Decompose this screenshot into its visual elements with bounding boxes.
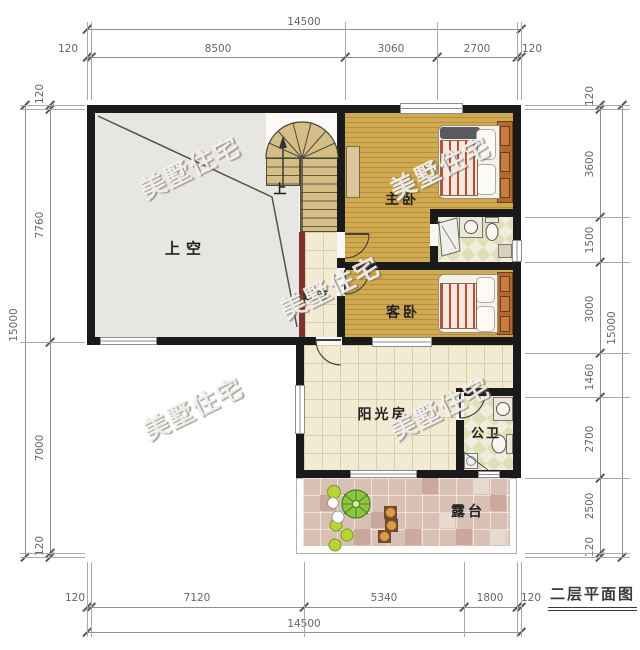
wall-corridor-lower xyxy=(337,296,345,337)
dim-extension xyxy=(521,22,522,100)
stairwell-railing xyxy=(299,232,305,337)
wall-bath-top xyxy=(456,388,521,396)
wall-ensuite-left xyxy=(430,246,438,262)
dim-top-3: 2700 xyxy=(464,43,491,55)
guest-bed-post xyxy=(500,276,510,292)
dim-extension xyxy=(517,562,518,637)
dim-bottom-3: 1800 xyxy=(477,592,504,604)
dim-right-3: 3000 xyxy=(584,296,596,323)
wall-left xyxy=(87,105,95,345)
ensuite-door-opening xyxy=(430,224,438,246)
dim-extension xyxy=(345,22,346,100)
dim-line-right-total xyxy=(622,105,623,557)
dim-line-right-segments xyxy=(600,105,601,557)
dim-extension xyxy=(91,22,92,100)
bath-window xyxy=(478,471,500,478)
dim-extension xyxy=(87,562,88,637)
ensuite-cabinet xyxy=(498,244,512,258)
corridor-floor xyxy=(305,232,337,337)
dim-extension xyxy=(525,397,630,398)
dim-extension xyxy=(517,22,518,100)
dim-extension xyxy=(525,109,630,110)
master-bedroom-label: 主卧 xyxy=(385,189,419,209)
stairs-up-label: 上 xyxy=(273,179,286,198)
master-door-opening xyxy=(337,232,345,258)
dim-line-left-segments xyxy=(50,105,51,557)
dim-extension xyxy=(20,553,85,554)
guest-bed-post xyxy=(500,296,510,312)
wardrobe xyxy=(346,146,360,198)
terrace-tile-accent xyxy=(422,478,438,494)
dim-extension xyxy=(464,562,465,637)
terrace-tile-accent xyxy=(371,512,387,528)
public-bath-toilet-tank xyxy=(506,434,513,454)
guest-bed-pillow xyxy=(476,277,495,303)
guest-bed-post xyxy=(500,316,510,332)
sunroom-label: 阳光房 xyxy=(358,404,409,424)
dim-extension xyxy=(20,105,85,106)
dim-left-1: 7760 xyxy=(34,212,46,239)
wall-ensuite-top xyxy=(430,209,521,217)
corridor-label: 过道 xyxy=(303,287,329,304)
master-bed-post xyxy=(500,126,510,146)
wall-guest-top xyxy=(337,262,521,270)
terrace-threshold xyxy=(350,470,417,478)
master-bed-throw xyxy=(440,127,480,139)
dim-extension xyxy=(525,478,630,479)
dim-extension xyxy=(525,217,630,218)
dim-extension xyxy=(437,22,438,100)
dim-top-1: 8500 xyxy=(205,43,232,55)
guest-bed-pillow xyxy=(476,306,495,332)
sunroom-door-opening xyxy=(316,337,342,345)
public-bath-label: 公卫 xyxy=(471,423,501,442)
ensuite-toilet-tank xyxy=(485,217,499,223)
dim-extension xyxy=(87,22,88,100)
floor-plan-canvas: 上空 主卧 客卧 阳光房 公卫 露台 过道 上 美墅住宅 美墅住宅 美墅住宅 美… xyxy=(0,0,640,650)
wall-ensuite-left-stub xyxy=(430,217,438,224)
dim-left-0: 120 xyxy=(34,84,46,104)
dim-extension xyxy=(91,562,92,637)
dim-right-7: 120 xyxy=(584,537,596,557)
dim-line-left-total xyxy=(25,105,26,557)
dim-right-2: 1500 xyxy=(584,227,596,254)
ensuite-window xyxy=(512,240,522,262)
terrace-tile-accent xyxy=(473,478,489,494)
guest-door-opening xyxy=(337,268,345,296)
dim-bottom-0: 120 xyxy=(65,592,85,604)
dim-extension xyxy=(20,557,85,558)
terrace-tile-accent xyxy=(354,529,370,545)
terrace-tile-accent xyxy=(405,529,421,545)
dim-extension xyxy=(525,353,630,354)
guest-internal-window xyxy=(372,337,432,347)
dim-right-0: 120 xyxy=(584,86,596,106)
dim-bottom-2: 5340 xyxy=(371,592,398,604)
bath-door-opening xyxy=(456,392,464,420)
dim-right-total: 15000 xyxy=(606,311,618,344)
public-bath-vanity xyxy=(493,397,513,421)
dim-left-total: 15000 xyxy=(8,308,20,341)
dim-right-6: 2500 xyxy=(584,493,596,520)
washing-machine xyxy=(464,453,478,469)
master-bed-pillow xyxy=(476,164,496,195)
wall-corridor-upper xyxy=(337,105,345,232)
dim-right-4: 1460 xyxy=(584,364,596,391)
dim-extension xyxy=(525,105,630,106)
dim-right-5: 2700 xyxy=(584,426,596,453)
terrace-tile-accent xyxy=(456,529,472,545)
wall-right xyxy=(513,105,521,478)
dim-extension xyxy=(20,109,85,110)
dim-right-1: 3600 xyxy=(584,151,596,178)
master-bed-post xyxy=(500,152,510,172)
dim-top-0: 120 xyxy=(58,43,78,55)
watermark: 美墅住宅 xyxy=(137,368,250,448)
master-window xyxy=(400,103,463,114)
terrace-tile-accent xyxy=(490,529,506,545)
master-bed-pillow xyxy=(476,129,496,160)
void-window xyxy=(100,337,157,345)
terrace-tile-accent xyxy=(320,495,336,511)
dim-extension xyxy=(525,553,630,554)
dim-line-top-segments xyxy=(87,57,521,58)
stair-flight-down xyxy=(300,158,338,232)
wall-sunroom-left-upper xyxy=(296,345,304,385)
ensuite-vanity xyxy=(459,216,483,238)
dim-left-2: 7000 xyxy=(34,435,46,462)
guest-bed-blanket xyxy=(440,283,477,329)
dim-line-top-total xyxy=(87,29,521,30)
master-bed-post xyxy=(500,178,510,198)
dim-extension xyxy=(521,562,522,637)
drawing-title: 二层平面图 xyxy=(548,583,637,611)
dim-top-total: 14500 xyxy=(287,16,320,28)
dim-extension xyxy=(20,342,85,343)
sunroom-window xyxy=(295,385,305,434)
terrace-label: 露台 xyxy=(451,501,485,521)
dim-extension xyxy=(304,562,305,637)
dim-top-2: 3060 xyxy=(378,43,405,55)
guest-bedroom-label: 客卧 xyxy=(386,302,420,322)
terrace-tile-accent xyxy=(490,495,506,511)
dim-extension xyxy=(525,557,630,558)
dim-bottom-1: 7120 xyxy=(184,592,211,604)
master-bed-blanket xyxy=(440,140,478,196)
dim-extension xyxy=(525,262,630,263)
stair-landing-backing xyxy=(266,113,338,158)
void-label: 上空 xyxy=(165,238,207,259)
